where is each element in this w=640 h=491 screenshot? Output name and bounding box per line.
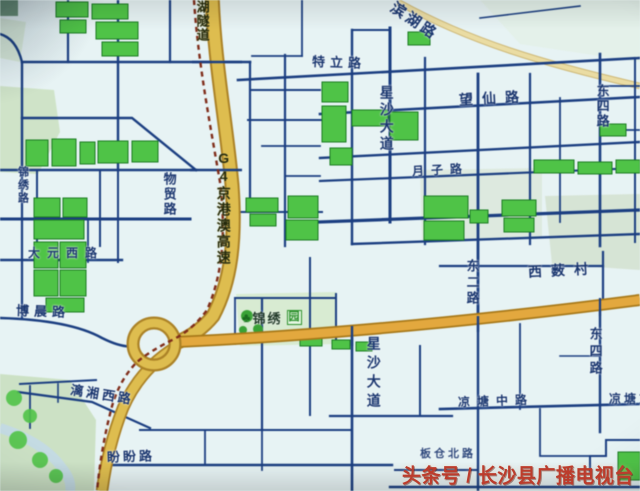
road-label-dongsi-lu-north: 东四路 <box>595 84 609 129</box>
road-label-xingsha-dadao-south: 星沙大道 <box>366 336 381 412</box>
poi-label-jinxiu-park: ♣ 锦绣 园 <box>242 308 302 327</box>
road-label-teli-lu: 特立路 <box>312 55 366 71</box>
highway-label-g4: G4京港澳高速 <box>216 150 231 266</box>
watermark-text: 头条号 / 长沙县广播电视台 <box>402 460 634 489</box>
tunnel-label: 湖隧道 <box>195 0 209 42</box>
road-label-xingsha-dadao-north: 星沙大道 <box>379 85 394 153</box>
road-label-jinxiu-lu: 锦绣路 <box>16 166 28 205</box>
tree-icon: ♣ <box>242 311 251 324</box>
road-label-bancang-beilu: 板仓北路 <box>420 449 476 461</box>
park-boxed-char: 园 <box>287 310 302 325</box>
road-label-dong-er-lu: 东二路 <box>465 259 479 307</box>
road-label-yuezi-lu: 月子路 <box>412 163 470 179</box>
map-content: 滨湖路 特立路 望仙路 星沙大道 东四路 月子路 物贸路 G4京港澳高速 湖隧道… <box>0 0 640 491</box>
park-name: 锦绣 <box>253 308 283 327</box>
map-viewport[interactable]: 滨湖路 特立路 望仙路 星沙大道 东四路 月子路 物贸路 G4京港澳高速 湖隧道… <box>0 0 640 491</box>
road-label-dongsi-lu-south: 东四路 <box>588 327 602 378</box>
road-label-wumao-lu: 物贸路 <box>162 172 176 217</box>
road-label-bochen-lu: 博晨路 <box>16 304 70 320</box>
road-label-dayuan-xilu: 大元西路 <box>28 247 104 260</box>
road-label-panpan-lu: 盼盼路 <box>107 449 155 464</box>
road-label-liangtang-zhonglu: 凉塘中路 <box>458 394 534 409</box>
road-label-liangtang-donglu: 凉塘东路 <box>609 393 640 406</box>
